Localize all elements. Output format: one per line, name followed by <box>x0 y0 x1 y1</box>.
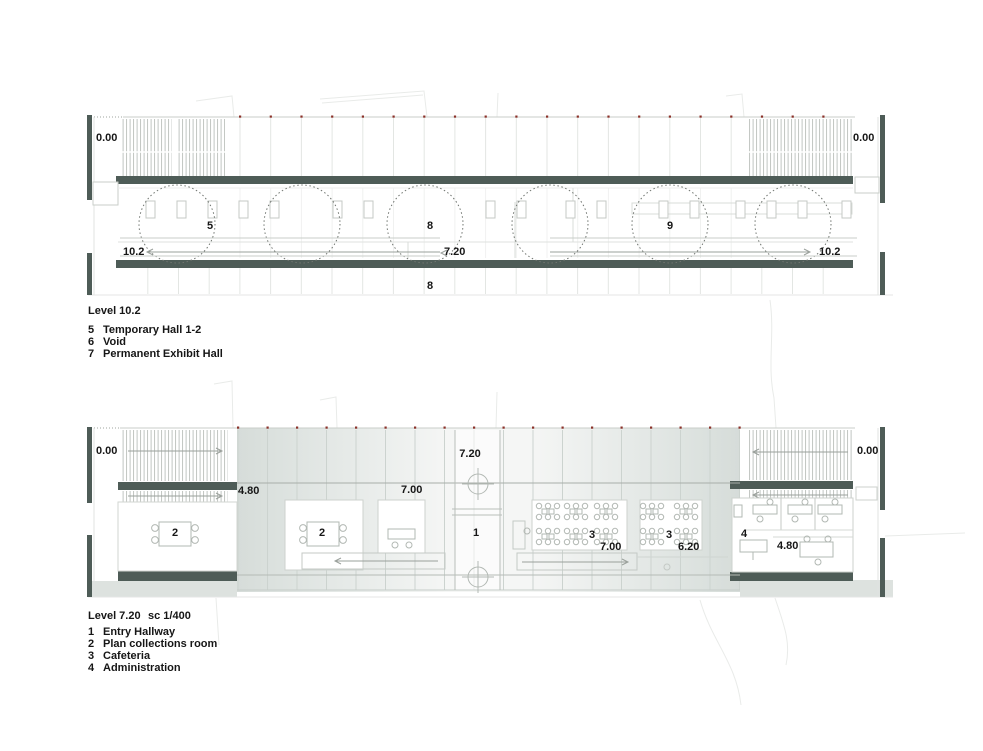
legend-item-name: Temporary Hall 1-2 <box>103 324 201 336</box>
stair-hatch-upper <box>121 119 853 176</box>
lower-elev-admin: 4.80 <box>777 541 798 552</box>
legend-item-num: 2 <box>88 639 103 650</box>
legend-item-num: 1 <box>88 627 103 638</box>
skylight-circle <box>264 185 340 263</box>
lower-elev-left-stair: 4.80 <box>238 486 259 497</box>
lower-room-cafeteria2-label: 3 <box>666 530 672 541</box>
lower-elev-site-left: 0.00 <box>96 446 117 457</box>
upper-elev-hall-mid: 7.20 <box>444 247 465 258</box>
lower-room-cafeteria1-label: 3 <box>589 530 595 541</box>
legend-item-name: Permanent Exhibit Hall <box>103 348 223 360</box>
skylight-circle <box>512 185 588 263</box>
lower-legend-item: 2Plan collections room <box>88 639 217 650</box>
lower-legend-item: 3Cafeteria <box>88 651 150 662</box>
lower-elev-entry: 7.20 <box>459 449 480 460</box>
legend-item-name: Administration <box>103 662 181 674</box>
upper-legend-title: Level 10.2 <box>88 306 141 317</box>
lower-room-plan-mid-label: 2 <box>319 528 325 539</box>
legend-item-num: 4 <box>88 663 103 674</box>
lower-plan <box>87 427 893 598</box>
legend-item-num: 5 <box>88 325 103 336</box>
legend-item-num: 7 <box>88 349 103 360</box>
skylight-circle <box>139 185 215 263</box>
upper-elev-hall-left: 10.2 <box>123 247 144 258</box>
lower-elev-plan-room: 7.00 <box>401 485 422 496</box>
legend-item-name: Plan collections room <box>103 638 217 650</box>
lower-legend-scale: sc 1/400 <box>148 611 191 622</box>
upper-elev-site-left: 0.00 <box>96 133 117 144</box>
legend-item-name: Cafeteria <box>103 650 150 662</box>
legend-item-num: 3 <box>88 651 103 662</box>
legend-item-name: Entry Hallway <box>103 626 175 638</box>
lower-elev-cafeteria2: 6.20 <box>678 542 699 553</box>
upper-legend-item: 6Void <box>88 337 126 348</box>
lower-legend-item: 1Entry Hallway <box>88 627 175 638</box>
wall-niches-upper <box>146 201 851 218</box>
lower-elev-cafeteria: 7.00 <box>600 542 621 553</box>
upper-elev-hall-right: 10.2 <box>819 247 840 258</box>
upper-legend-item: 5Temporary Hall 1-2 <box>88 325 201 336</box>
lower-room-admin-label: 4 <box>741 529 747 540</box>
upper-room-temporary-label: 5 <box>207 221 213 232</box>
upper-room-exhibit-right-label: 9 <box>667 221 673 232</box>
lower-elev-site-right: 0.00 <box>857 446 878 457</box>
upper-elev-site-right: 0.00 <box>853 133 874 144</box>
upper-plan <box>87 115 893 295</box>
lower-room-entry-label: 1 <box>473 528 479 539</box>
upper-legend-item: 7Permanent Exhibit Hall <box>88 349 223 360</box>
lower-legend-title: Level 7.20 <box>88 611 141 622</box>
ramp-upper <box>120 238 857 256</box>
lower-room-plan-left-label: 2 <box>172 528 178 539</box>
legend-item-name: Void <box>103 336 126 348</box>
lower-legend-item: 4Administration <box>88 663 181 674</box>
upper-label-below-hall: 8 <box>427 281 433 292</box>
skylight-circles <box>139 185 831 263</box>
drawing-canvas: 0.00 0.00 5 8 9 10.2 7.20 10.2 8 Level 1… <box>0 0 983 751</box>
legend-item-num: 6 <box>88 337 103 348</box>
upper-room-exhibit-mid-label: 8 <box>427 221 433 232</box>
